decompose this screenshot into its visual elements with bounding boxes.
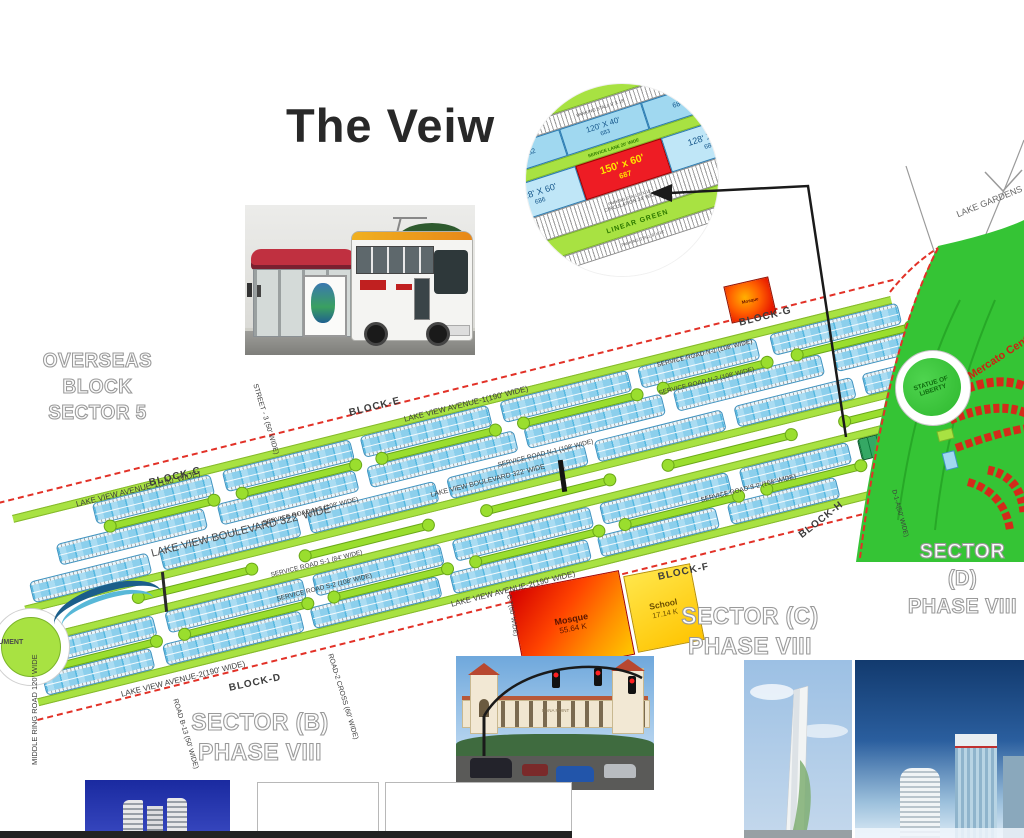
plot-688-num: 688	[704, 141, 717, 151]
bus-windshield	[434, 250, 468, 294]
bus-wheel	[364, 322, 388, 346]
monument-label: MONUMENT	[0, 639, 23, 646]
bottom-strip	[0, 831, 572, 838]
intersection-photo: DANA POINT	[456, 656, 654, 790]
sector-d-title: SECTOR (D) PHASE VIII	[903, 538, 1022, 620]
bus-livery	[396, 284, 412, 290]
haze	[855, 828, 1024, 838]
bus-windows	[356, 246, 434, 274]
car-suv	[470, 758, 512, 778]
light-pole-arm	[393, 217, 427, 219]
plot-686-num: 686	[534, 196, 547, 206]
shelter-ad-panel	[303, 275, 347, 337]
bus-door	[414, 278, 430, 320]
skyline-photo	[855, 660, 1024, 838]
bus-stop-photo	[245, 205, 475, 355]
callout-content: PARKING STALL 8' X 18' 682 120' X 40' 68…	[526, 84, 718, 276]
photo-frame-empty	[385, 782, 572, 838]
dana-point-sign: DANA POINT	[542, 708, 569, 713]
sector-c-line2: PHASE VIII	[669, 632, 831, 662]
twisted-tower-photo	[744, 660, 852, 838]
car-silver	[604, 764, 636, 778]
plot-687-num: 687	[618, 169, 632, 181]
sector-b-line2: PHASE VIII	[184, 738, 336, 768]
sector-c-line1: SECTOR (C)	[669, 602, 831, 632]
small-mosque-name: Mosque	[741, 296, 759, 305]
page-title: The Veiw	[286, 98, 495, 153]
bus-wheel	[426, 322, 450, 346]
middle-ring-road-label: MIDDLE RING ROAD 120' WIDE	[30, 654, 39, 765]
bus	[351, 231, 473, 341]
photo-frame-empty	[257, 782, 379, 838]
plot-683-num: 683	[600, 129, 612, 138]
tower-cap	[955, 734, 997, 748]
bus-livery	[360, 280, 386, 290]
twisted-tower	[744, 660, 852, 838]
sector-c-title: SECTOR (C) PHASE VIII	[669, 602, 831, 662]
sector-b-title: SECTOR (B) PHASE VIII	[184, 708, 336, 768]
overseas-line1: OVERSEAS BLOCK	[10, 348, 186, 400]
pedestrian	[257, 285, 261, 297]
detail-callout-circle: PARKING STALL 8' X 18' 682 120' X 40' 68…	[526, 84, 718, 276]
sector-b-line1: SECTOR (B)	[184, 708, 336, 738]
ad-poster	[311, 283, 335, 323]
masterplan-page: The Veiw	[0, 0, 1024, 838]
shelter-roof	[251, 249, 355, 265]
pedestrian	[247, 283, 252, 297]
car-red	[522, 764, 548, 776]
tall-tower	[955, 734, 997, 838]
sector-d-line1: SECTOR (D)	[903, 538, 1022, 593]
overseas-block-title: OVERSEAS BLOCK SECTOR 5	[10, 348, 186, 426]
towers-photo	[85, 780, 230, 838]
overseas-line2: SECTOR 5	[10, 400, 186, 426]
bus-roof-stripe	[352, 232, 472, 240]
edge-tower	[1003, 756, 1024, 838]
car-blue	[556, 766, 594, 782]
sector-d-line2: PHASE VIII	[903, 593, 1022, 620]
